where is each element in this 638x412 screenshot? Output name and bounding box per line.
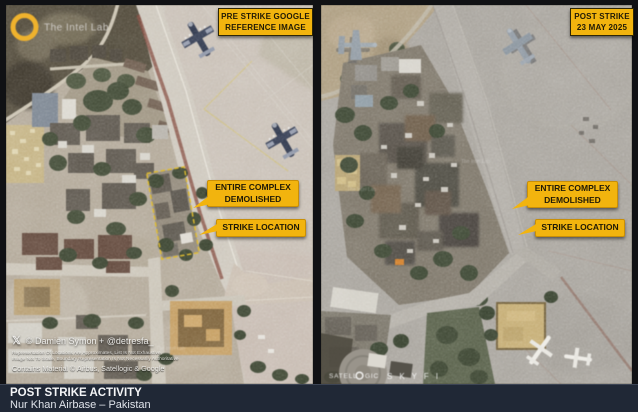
svg-text:S K Y F I: S K Y F I [387, 372, 440, 381]
svg-text:GIC: GIC [365, 373, 379, 380]
svg-text:The Intel Lab: The Intel Lab [347, 187, 376, 193]
svg-text:SATELL: SATELL [329, 373, 358, 380]
svg-text:The Intel Lab: The Intel Lab [44, 23, 109, 34]
svg-text:The Intel Lab: The Intel Lab [461, 159, 490, 165]
